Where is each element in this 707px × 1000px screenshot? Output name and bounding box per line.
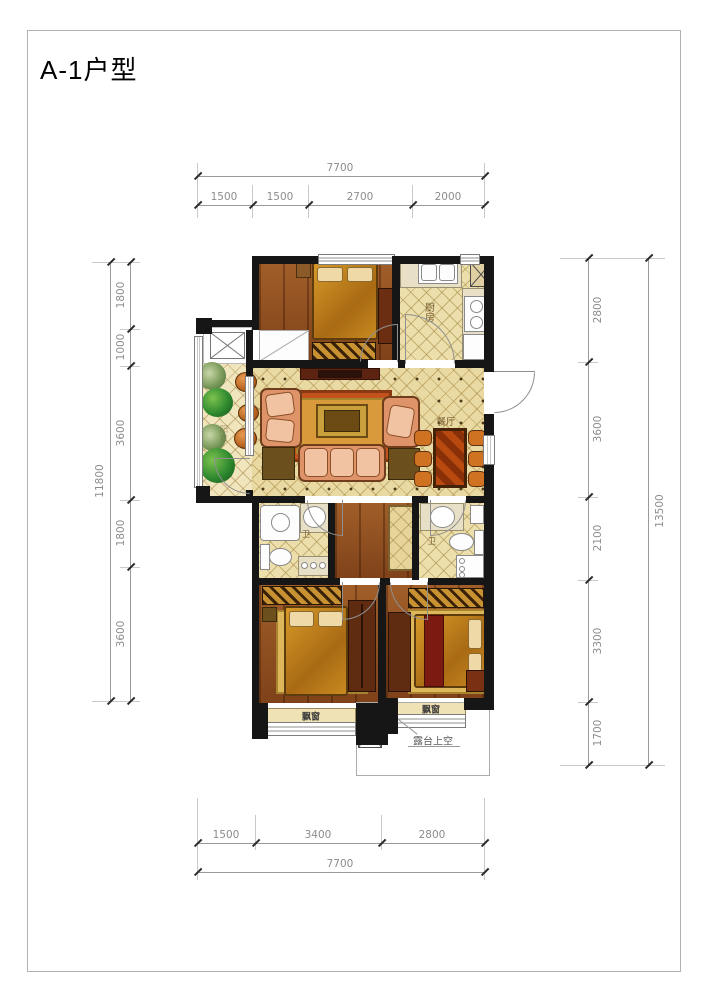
dim-top-seg: 1500: [258, 191, 302, 203]
wall-segment: [466, 496, 494, 503]
bedroom1-corner-window: [259, 330, 309, 362]
floorplan-page: A-1户型 厨房 餐厅: [0, 0, 707, 1000]
extension-line: [197, 163, 198, 218]
bay-window-left-glass: [266, 722, 356, 736]
living-balcony-window: [245, 376, 254, 456]
balcony-window: [194, 336, 203, 488]
dimension-line: [588, 258, 589, 765]
extension-line: [484, 798, 485, 880]
sofa-cushion: [330, 448, 354, 477]
wall-corner: [252, 703, 268, 739]
coffee-table-top: [324, 410, 360, 432]
dim-bottom-seg: 1500: [204, 829, 248, 841]
bedroom1-pillow: [317, 267, 343, 282]
wall-segment: [428, 578, 492, 585]
dining-table: [433, 428, 467, 488]
stove-burner-icon: [470, 300, 483, 313]
bedroom2-wardrobe-hatch: [262, 586, 342, 605]
bedroom3-bed-runner: [424, 615, 444, 687]
extension-line: [92, 701, 140, 702]
extension-line: [484, 163, 485, 218]
dim-top-seg: 2700: [338, 191, 382, 203]
wall-segment: [484, 256, 494, 372]
wardrobe-door-line: [361, 604, 363, 688]
wall-segment: [380, 578, 390, 585]
bedroom1-window: [318, 254, 395, 265]
wall-segment: [378, 585, 386, 705]
extension-line: [252, 185, 253, 218]
page-title: A-1户型: [40, 50, 137, 87]
stove-burner-icon: [470, 316, 483, 329]
dim-right-seg: 3600: [592, 416, 604, 443]
shelf-knob-icon: [310, 562, 317, 569]
tv: [318, 370, 362, 378]
sofa-cushion: [304, 448, 328, 477]
wall-segment: [484, 414, 494, 435]
kitchen-sink-basin: [439, 264, 455, 281]
shelf-knob-icon: [319, 562, 326, 569]
toilet-bowl: [269, 548, 292, 566]
wall-segment: [455, 360, 492, 368]
side-table: [262, 447, 295, 480]
wall-segment: [246, 330, 253, 376]
dim-left-seg: 1800: [115, 282, 127, 309]
wall-segment: [412, 496, 428, 503]
dim-bottom-total: 7700: [318, 858, 362, 870]
extension-line: [197, 798, 198, 880]
bedroom1-pillow: [347, 267, 373, 282]
dim-left-seg: 3600: [115, 621, 127, 648]
ac-unit-x-icon: [210, 332, 245, 359]
bedroom2-nightstand: [262, 607, 277, 622]
wall-corner: [356, 703, 388, 745]
extension-line: [412, 185, 413, 218]
dimension-line: [648, 258, 649, 765]
wall-segment: [252, 578, 340, 585]
bedroom2-pillow: [318, 611, 343, 627]
shelf-knob-icon: [301, 562, 308, 569]
wall-segment: [398, 360, 405, 368]
dim-bottom-seg: 3400: [296, 829, 340, 841]
bedroom2-pillow: [289, 611, 314, 627]
dining-chair: [414, 471, 432, 487]
wall-segment: [252, 503, 259, 710]
dimension-line: [110, 262, 111, 701]
shower-drain-icon: [271, 513, 290, 532]
wall-segment: [252, 360, 368, 368]
extension-line: [92, 262, 140, 263]
dimension-line: [197, 205, 485, 206]
wall-corner: [386, 698, 398, 734]
dimension-line: [197, 872, 485, 873]
dining-chair: [414, 451, 432, 467]
plant-icon: [202, 388, 233, 417]
toilet-bowl: [449, 533, 474, 551]
bedroom1-nightstand: [296, 262, 311, 278]
kitchen-window: [460, 254, 480, 265]
sofa-cushion: [356, 448, 380, 477]
bath2-label: 卫: [428, 535, 437, 547]
living-window: [483, 435, 495, 465]
dim-bottom-seg: 2800: [410, 829, 454, 841]
dim-left-total: 11800: [94, 464, 106, 497]
hall-closet: [388, 505, 414, 571]
dimension-line: [197, 843, 485, 844]
balcony-label: 阳台: [217, 425, 229, 442]
wall-segment: [412, 503, 419, 580]
wall-segment: [395, 256, 460, 264]
loveseat-cushion: [265, 418, 295, 444]
dim-top-seg: 1500: [202, 191, 246, 203]
wall-segment: [252, 256, 318, 264]
dim-right-seg: 2100: [592, 525, 604, 552]
dim-left-seg: 1800: [115, 520, 127, 547]
wall-corner: [196, 318, 212, 334]
bath1-label: 卫: [302, 528, 311, 540]
kitchen-sink-basin: [421, 264, 437, 281]
dim-left-seg: 1000: [115, 334, 127, 361]
dim-right-total: 13500: [654, 494, 666, 527]
dim-right-seg: 3300: [592, 628, 604, 655]
wall-segment: [252, 256, 259, 330]
dim-top-seg: 2000: [426, 191, 470, 203]
wall-segment: [252, 496, 305, 503]
bedroom3-nightstand: [466, 670, 486, 692]
washer-dial-icon: [459, 558, 465, 564]
dim-right-seg: 1700: [592, 720, 604, 747]
bay-window-left-label: 飘窗: [302, 710, 320, 723]
bedroom3-pillow: [468, 619, 482, 649]
water-heater: [470, 505, 484, 524]
wall-corner: [464, 698, 494, 710]
dim-top-total: 7700: [318, 162, 362, 174]
dining-label: 餐厅: [436, 414, 455, 428]
terrace-label: 露台上空: [413, 733, 453, 748]
dim-right-seg: 2800: [592, 297, 604, 324]
loveseat-cushion: [265, 391, 296, 418]
dimension-line: [197, 176, 485, 177]
extension-line: [308, 185, 309, 218]
bedroom3-wardrobe: [388, 612, 411, 692]
dim-left-seg: 3600: [115, 420, 127, 447]
armchair-cushion: [385, 404, 415, 439]
toilet-tank: [474, 530, 484, 555]
dining-chair: [414, 430, 432, 446]
